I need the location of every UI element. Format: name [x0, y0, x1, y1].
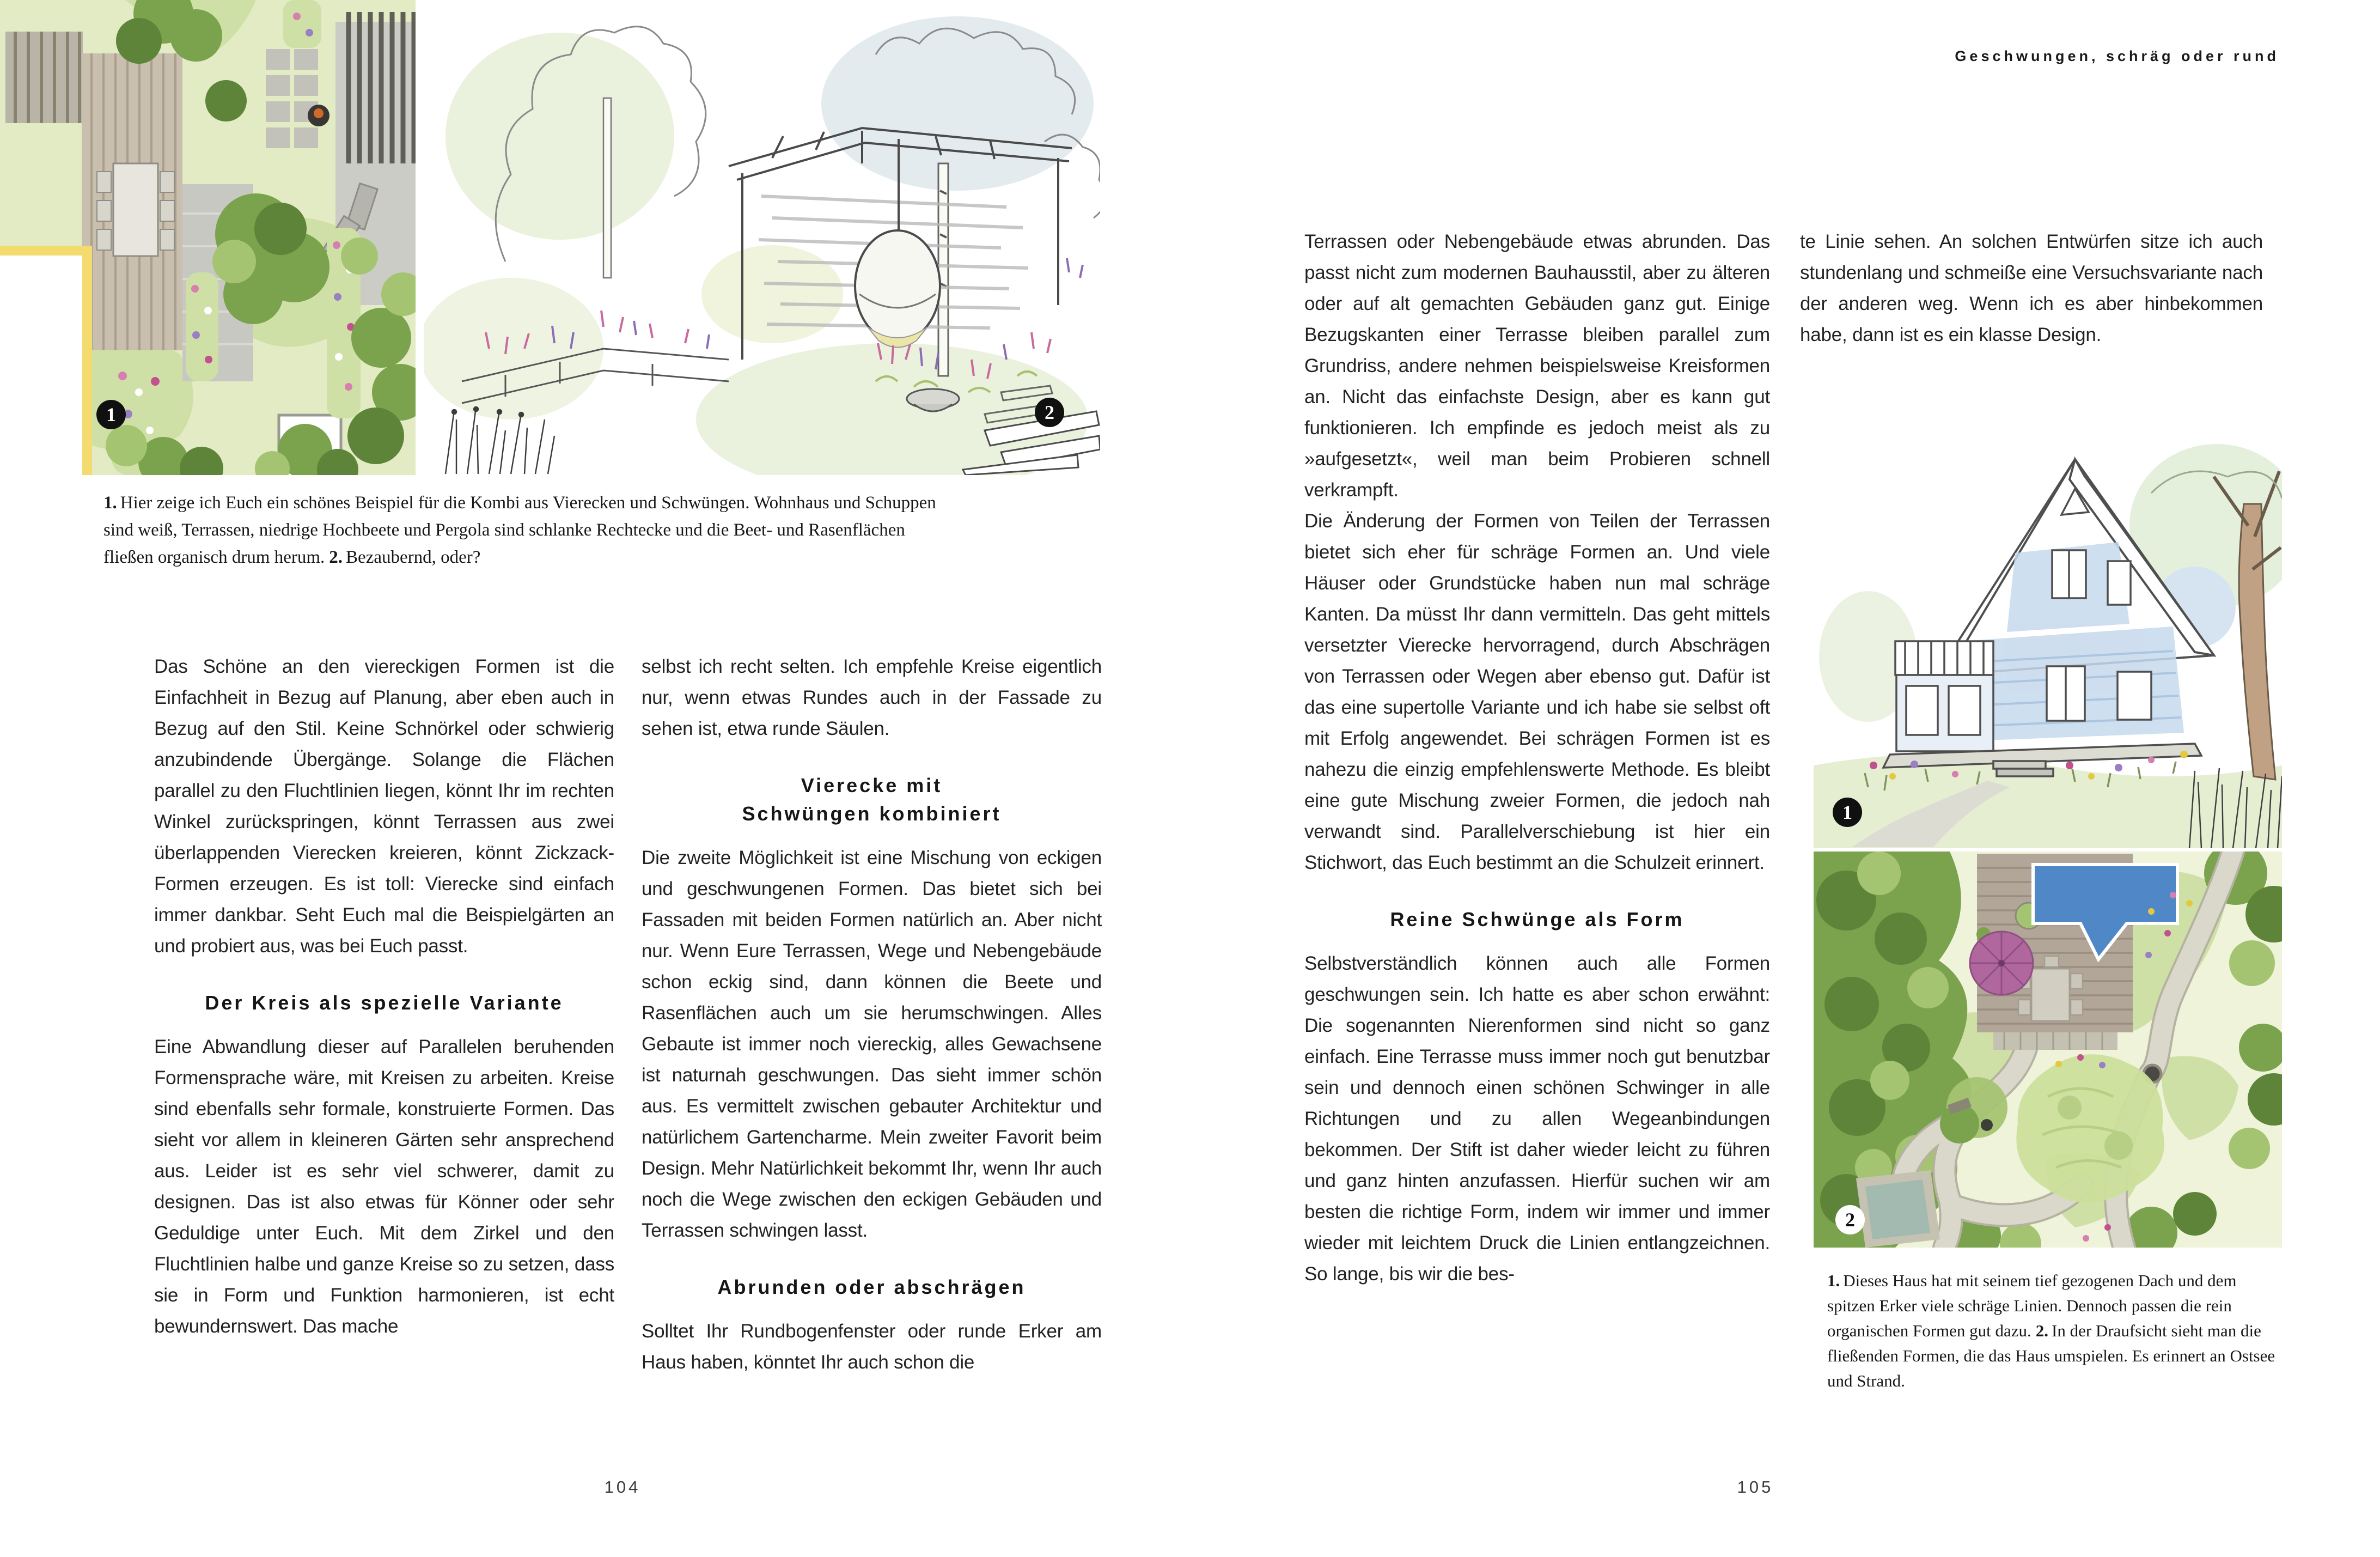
figure-marker-1: 1 — [1833, 798, 1862, 827]
paragraph: Die zweite Möglichkeit ist eine Mischung… — [642, 842, 1102, 1246]
book-spread: 1 2 1.Hier zeige ich Euch ein schönes Be… — [0, 0, 2380, 1557]
figure-marker-2-number: 2 — [1045, 401, 1054, 424]
figure-marker-1-number: 1 — [106, 403, 116, 426]
paragraph: Solltet Ihr Rundbogenfenster oder runde … — [642, 1316, 1102, 1378]
heading-line: Schwüngen kombiniert — [642, 800, 1102, 828]
right-column-2: te Linie sehen. An solchen Entwürfen sit… — [1800, 226, 2263, 350]
right-figure-caption: 1.Dieses Haus hat mit seinem tief gezoge… — [1827, 1268, 2282, 1394]
plan-pond — [1856, 1170, 1940, 1248]
heading-line: Vierecke mit — [642, 771, 1102, 800]
page-number-left: 104 — [568, 1477, 677, 1497]
section-heading-vierecke: Vierecke mit Schwüngen kombiniert — [642, 771, 1102, 828]
plan-deck — [82, 53, 182, 350]
paragraph: Das Schöne an den viereckigen Formen ist… — [154, 651, 614, 962]
figure-marker-2: 2 — [1035, 398, 1064, 427]
paragraph: Die Änderung der Formen von Teilen der T… — [1304, 506, 1770, 878]
paragraph: te Linie sehen. An solchen Entwürfen sit… — [1800, 226, 2263, 350]
figure-marker-1: 1 — [96, 400, 126, 429]
paragraph: Selbstverständlich können auch alle Form… — [1304, 948, 1770, 1290]
right-page: Geschwungen, schräg oder rund Terrassen … — [1190, 0, 2380, 1557]
caption-number-1: 1. — [103, 493, 120, 513]
garden-sketch-illustration — [424, 0, 1100, 475]
plan-shed — [5, 32, 83, 123]
section-heading-kreis: Der Kreis als spezielle Variante — [154, 989, 614, 1017]
left-column-1: Das Schöne an den viereckigen Formen ist… — [154, 651, 614, 1342]
left-column-2: selbst ich recht selten. Ich empfehle Kr… — [642, 651, 1102, 1378]
garden-plan-illustration — [0, 0, 416, 475]
caption-text-1: Hier zeige ich Euch ein schönes Beispiel… — [103, 493, 936, 567]
figure-marker-2: 2 — [1835, 1205, 1865, 1234]
caption-number-2: 2. — [329, 548, 346, 567]
figure-marker-1-number: 1 — [1842, 801, 1852, 824]
plan-central-tree — [2016, 1054, 2164, 1203]
house-sketch-illustration — [1814, 428, 2282, 848]
caption-number-2: 2. — [2036, 1321, 2052, 1340]
left-figure-caption: 1.Hier zeige ich Euch ein schönes Beispi… — [103, 489, 942, 571]
running-head: Geschwungen, schräg oder rund — [1955, 48, 2279, 65]
right-column-1: Terrassen oder Nebengebäude etwas abrund… — [1304, 226, 1770, 1290]
left-page: 1 2 1.Hier zeige ich Euch ein schönes Be… — [0, 0, 1190, 1557]
section-heading-abrunden: Abrunden oder abschrägen — [642, 1273, 1102, 1301]
figure-marker-2-number: 2 — [1845, 1208, 1855, 1231]
paragraph: selbst ich recht selten. Ich empfehle Kr… — [642, 651, 1102, 744]
caption-text-2: Bezaubernd, oder? — [346, 548, 485, 567]
page-number-right: 105 — [1701, 1477, 1810, 1497]
plan-umbrella — [1970, 932, 2033, 995]
section-heading-schwuenge: Reine Schwünge als Form — [1304, 905, 1770, 934]
caption-number-1: 1. — [1827, 1271, 1843, 1290]
plan-house — [0, 251, 87, 475]
paragraph: Terrassen oder Nebengebäude etwas abrund… — [1304, 226, 1770, 506]
paragraph: Eine Abwandlung dieser auf Parallelen be… — [154, 1031, 614, 1342]
flowing-plan-illustration — [1814, 852, 2282, 1248]
